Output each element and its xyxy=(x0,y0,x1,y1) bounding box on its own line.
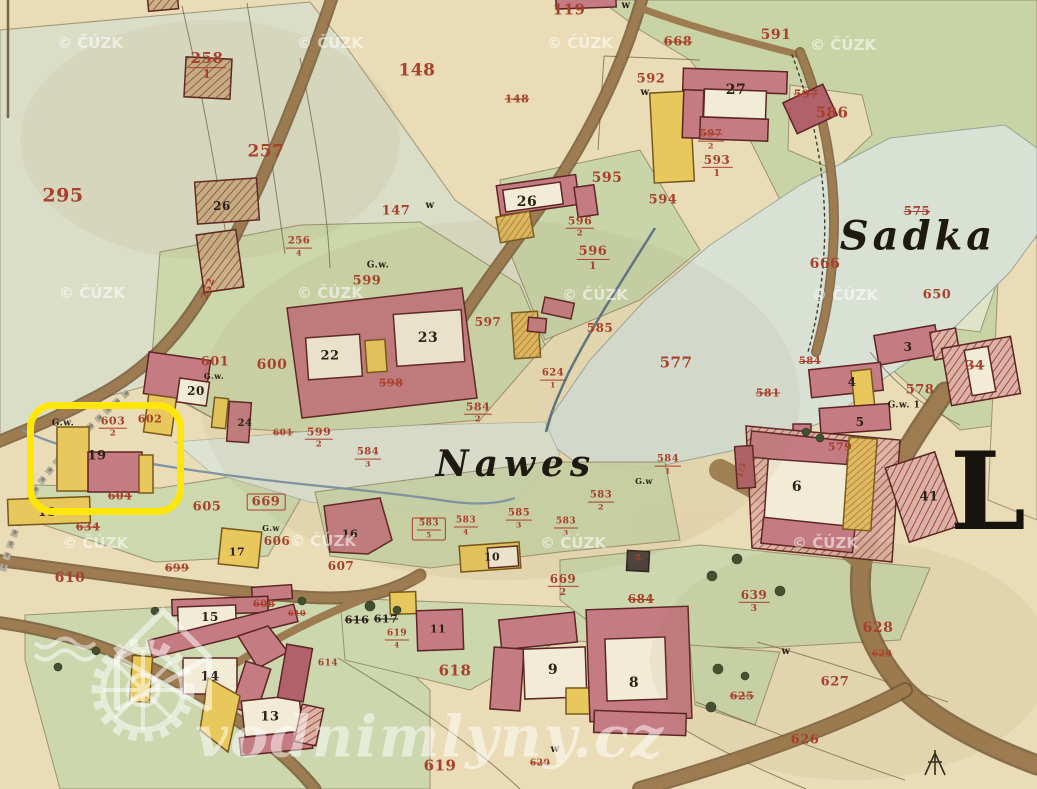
parcel-label: 606 xyxy=(264,535,291,547)
parcel-label: 11 xyxy=(430,624,446,635)
parcel-label: 6194 xyxy=(385,629,409,648)
parcel-label: 608 xyxy=(253,600,275,610)
parcel-label: w xyxy=(425,201,434,211)
parcel-label: 579 xyxy=(828,442,852,453)
parcel-label: 5931 xyxy=(702,154,733,178)
parcel-label: 669 xyxy=(247,494,286,511)
parcel-label: 610 xyxy=(288,609,306,617)
parcel-label: 650 xyxy=(923,289,952,302)
parcel-label: 699 xyxy=(165,563,189,574)
parcel-label: 22 xyxy=(320,350,339,363)
parcel-label: 5962 xyxy=(566,216,594,239)
parcel-label: 1/3 xyxy=(735,461,747,478)
parcel-label: 600 xyxy=(257,358,288,372)
parcel-label: 6393 xyxy=(739,589,770,613)
parcel-label: 8 xyxy=(629,676,639,690)
parcel-label: 594 xyxy=(649,194,678,207)
parcel-label: 577 xyxy=(660,356,693,371)
parcel-label: 6032 xyxy=(99,416,127,439)
parcel-label: 5841 xyxy=(655,455,681,476)
parcel-label: 9 xyxy=(548,663,558,677)
parcel-label: 5833 xyxy=(554,517,578,536)
parcel-label: 614 xyxy=(318,660,338,669)
parcel-label: 3 xyxy=(904,341,913,353)
parcel-label: 5842 xyxy=(464,402,492,425)
place-name-sadka: Sadka xyxy=(840,213,996,260)
parcel-label: 586 xyxy=(816,106,849,121)
parcel-label: 585 xyxy=(587,322,614,334)
parcel-label: 4 xyxy=(848,376,857,388)
parcel-label: 610 xyxy=(55,571,86,585)
parcel-label: 20 xyxy=(187,385,205,397)
map-sheet-letter: L xyxy=(950,438,1026,546)
parcel-label: G.w. xyxy=(52,420,74,429)
parcel-label: 629 xyxy=(872,651,892,660)
parcel-label: 257 xyxy=(248,144,285,161)
parcel-label: w xyxy=(550,745,559,755)
parcel-label: 592 xyxy=(637,73,666,86)
parcel-label: 252 xyxy=(200,277,217,301)
parcel-label: w xyxy=(621,1,630,11)
parcel-label: 5843 xyxy=(355,448,381,469)
parcel-label: 34 xyxy=(965,360,984,373)
parcel-label: 5 xyxy=(856,416,865,428)
parcel-label: 595 xyxy=(592,171,623,185)
parcel-label: 601 xyxy=(273,430,293,439)
parcel-label: 16 xyxy=(342,529,358,540)
parcel-label: 578 xyxy=(906,384,935,397)
parcel-label: w xyxy=(781,647,790,657)
parcel-label: 5835 xyxy=(412,517,446,540)
parcel-label: 23 xyxy=(418,331,438,345)
parcel-label: 27 xyxy=(726,83,746,97)
parcel-label: 5834 xyxy=(454,516,478,535)
parcel-label: 7 xyxy=(635,556,642,565)
parcel-label: 41 xyxy=(919,491,938,504)
parcel-label: 626 xyxy=(791,734,820,747)
parcel-label: 617 xyxy=(374,614,398,625)
place-name-nawes: Nawes xyxy=(436,443,596,485)
parcel-label: 24 xyxy=(238,419,253,429)
parcel-label: 599 xyxy=(353,275,382,288)
parcel-label: G.w. xyxy=(204,372,224,380)
parcel-label: 5832 xyxy=(588,491,614,512)
parcel-label: G.w. 1 xyxy=(888,402,921,411)
parcel-label: 15 xyxy=(201,611,219,623)
parcel-label: 619 xyxy=(424,759,457,774)
parcel-label: 634 xyxy=(76,522,100,533)
parcel-label: 19 xyxy=(87,450,106,463)
parcel-label: 604 xyxy=(108,491,132,502)
parcel-label: 2581 xyxy=(189,51,226,81)
parcel-label: 607 xyxy=(328,560,355,572)
parcel-label: 625 xyxy=(730,691,754,702)
parcel-label: 627 xyxy=(821,676,850,689)
parcel-label: 597 xyxy=(475,316,502,328)
parcel-label: 620 xyxy=(530,760,550,769)
parcel-label: 6 xyxy=(792,480,802,494)
parcel-label: 684 xyxy=(628,593,655,605)
parcel-label: 26 xyxy=(517,195,537,209)
parcel-label: 295 xyxy=(42,187,83,206)
parcel-label: 581 xyxy=(756,388,780,399)
parcel-label: 5992 xyxy=(305,427,333,450)
parcel-label: 666 xyxy=(810,257,841,271)
parcel-label: G.w. xyxy=(367,262,389,271)
parcel-label: 119 xyxy=(553,3,586,18)
parcel-label: 13 xyxy=(260,711,279,724)
parcel-label: 668 xyxy=(664,36,693,49)
cadastral-map: 2952581257256425226119148148147ww591592w… xyxy=(0,0,1037,789)
parcel-label: 605 xyxy=(193,501,222,514)
parcel-label: 147 xyxy=(382,205,411,218)
parcel-label: 5972 xyxy=(698,130,724,151)
parcel-label: 616 xyxy=(345,615,369,626)
parcel-label: 5961 xyxy=(577,245,610,271)
parcel-label: 618 xyxy=(439,664,472,679)
parcel-label: G.w xyxy=(635,477,653,485)
parcel-label: 2564 xyxy=(286,237,312,258)
parcel-label: 18 xyxy=(38,506,56,518)
parcel-label: 148 xyxy=(399,63,436,80)
parcel-label: 597 xyxy=(794,89,818,100)
parcel-label: 591 xyxy=(761,28,792,42)
parcel-label: w xyxy=(640,88,649,98)
parcel-label: 584 xyxy=(799,357,821,367)
parcel-labels-layer: 2952581257256425226119148148147ww591592w… xyxy=(0,0,1037,789)
parcel-label: 598 xyxy=(379,378,403,389)
parcel-label: 148 xyxy=(505,94,529,105)
parcel-label: 6241 xyxy=(540,369,566,390)
parcel-label: 17 xyxy=(229,547,245,558)
parcel-label: 14 xyxy=(200,671,219,684)
parcel-label: 26 xyxy=(213,200,231,212)
parcel-label: 10 xyxy=(484,552,500,563)
parcel-label: 6692 xyxy=(548,573,579,597)
parcel-label: 628 xyxy=(863,621,894,635)
parcel-label: 602 xyxy=(138,414,162,425)
parcel-label: 5853 xyxy=(506,509,532,530)
parcel-label: G.w xyxy=(262,524,280,532)
parcel-label: 601 xyxy=(201,356,230,369)
